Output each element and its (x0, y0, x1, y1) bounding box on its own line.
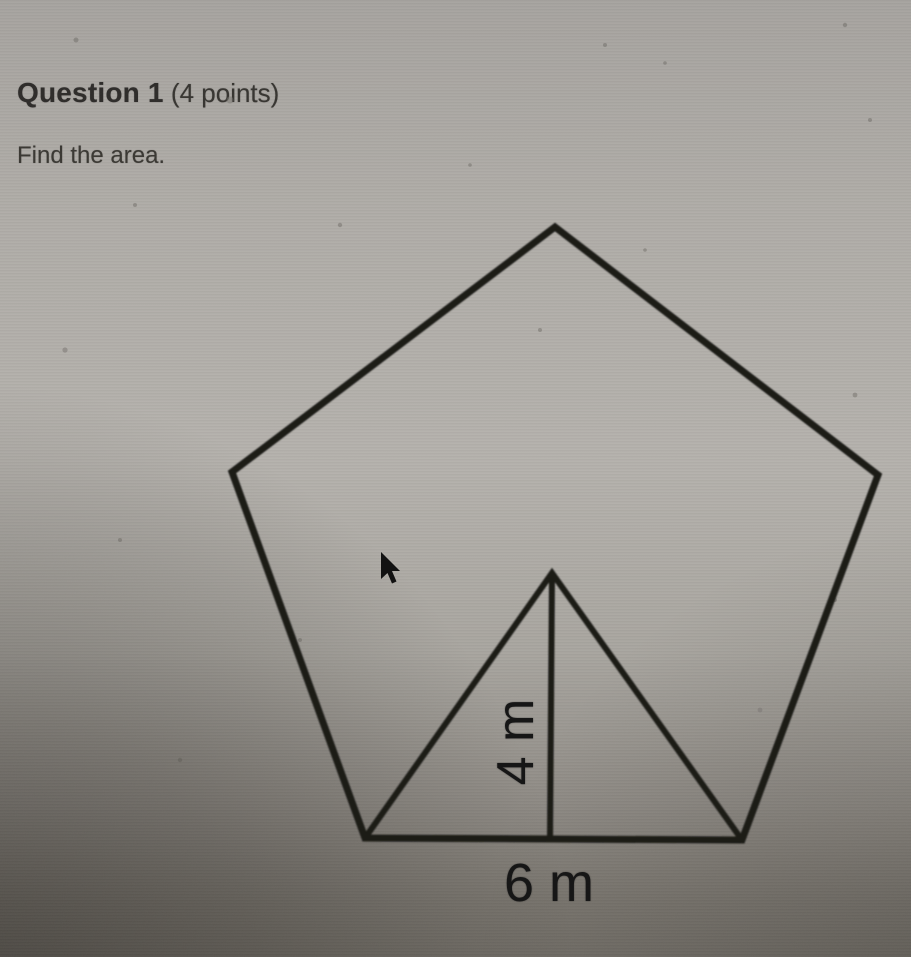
quiz-screen: { "question": { "number_label": "Questio… (0, 0, 911, 957)
side-dimension-label: 6 m (504, 852, 594, 914)
photo-noise-overlay (0, 0, 911, 957)
apothem-line (550, 573, 552, 841)
apothem-dimension-label: 4 m (486, 699, 546, 786)
pentagon-figure (0, 0, 911, 957)
